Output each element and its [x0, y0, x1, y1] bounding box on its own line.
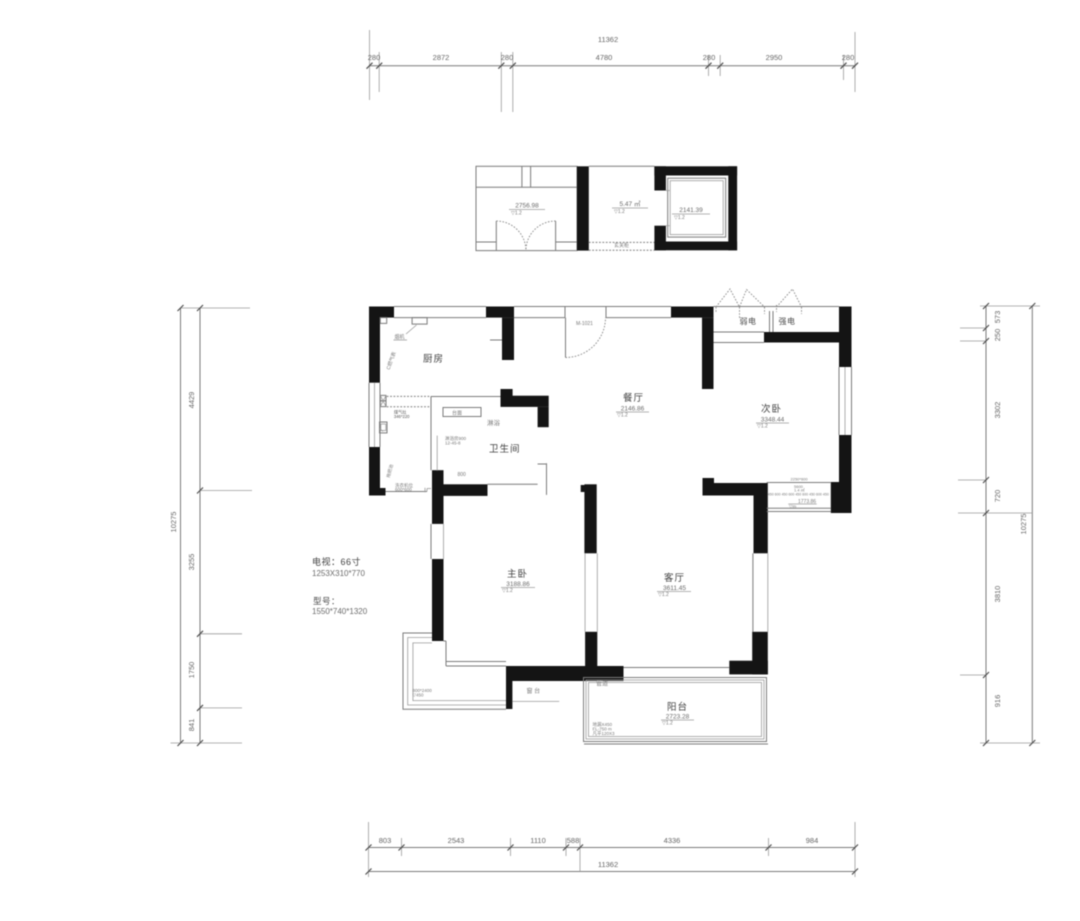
svg-text:4336: 4336: [664, 836, 681, 845]
svg-text:1750: 1750: [187, 662, 196, 679]
svg-text:3188.86: 3188.86: [506, 581, 530, 588]
svg-text:M-1021: M-1021: [576, 321, 593, 327]
svg-text:4780: 4780: [596, 53, 613, 62]
svg-text:1550*740*1320: 1550*740*1320: [312, 607, 368, 616]
svg-text:573: 573: [993, 311, 1002, 324]
svg-text:2723.28: 2723.28: [666, 714, 690, 721]
svg-text:280: 280: [703, 53, 716, 62]
svg-text:窗 台: 窗 台: [527, 687, 541, 695]
svg-text:3611.45: 3611.45: [663, 585, 686, 592]
svg-text:▽1.2: ▽1.2: [511, 211, 522, 217]
svg-text:台面: 台面: [452, 410, 462, 417]
svg-text:▽m: ▽m: [789, 504, 796, 509]
svg-text:800: 800: [458, 472, 467, 478]
svg-text:1110: 1110: [530, 836, 546, 845]
svg-text:10275: 10275: [1019, 514, 1028, 535]
svg-text:2146.86: 2146.86: [621, 406, 645, 413]
svg-text:3810: 3810: [993, 586, 1002, 603]
svg-text:280: 280: [368, 53, 381, 62]
svg-text:841: 841: [187, 719, 196, 732]
svg-text:5.47 ㎡: 5.47 ㎡: [620, 199, 641, 208]
svg-text:12-45-8: 12-45-8: [445, 441, 461, 446]
svg-text:4429: 4429: [187, 392, 196, 409]
svg-text:型号：: 型号：: [313, 596, 340, 606]
svg-text:卫生间: 卫生间: [489, 443, 521, 455]
svg-text:次卧: 次卧: [761, 403, 782, 415]
svg-text:电视：66寸: 电视：66寸: [312, 556, 361, 567]
svg-text:3348.44: 3348.44: [761, 417, 785, 424]
svg-text:450 600 450 600 450 600 450 60: 450 600 450 600 450 600 450 600 450: [768, 491, 830, 496]
svg-text:916: 916: [993, 695, 1002, 708]
svg-text:▽1.2: ▽1.2: [757, 424, 768, 430]
svg-text:厨房: 厨房: [423, 353, 444, 365]
svg-text:▽1.2: ▽1.2: [502, 588, 513, 594]
svg-text:280: 280: [842, 53, 855, 62]
svg-text:▽1.2: ▽1.2: [614, 209, 625, 215]
svg-text:▽450: ▽450: [413, 693, 424, 698]
svg-text:弱电: 弱电: [740, 316, 757, 326]
svg-text:10275: 10275: [169, 512, 178, 533]
svg-text:2872: 2872: [433, 53, 450, 62]
svg-text:玄关柜: 玄关柜: [614, 242, 629, 249]
svg-text:600*600: 600*600: [395, 487, 412, 492]
svg-text:2756.98: 2756.98: [515, 203, 539, 210]
svg-text:280: 280: [501, 53, 514, 62]
svg-text:346*220: 346*220: [394, 414, 410, 419]
svg-text:250: 250: [993, 329, 1002, 342]
svg-text:▽1.2: ▽1.2: [662, 721, 673, 727]
svg-text:3255: 3255: [187, 554, 196, 571]
svg-text:阳台: 阳台: [667, 701, 688, 713]
svg-text:11362: 11362: [598, 35, 618, 44]
svg-text:2141.39: 2141.39: [679, 207, 703, 214]
svg-text:▽1.2: ▽1.2: [658, 592, 669, 598]
svg-text:餐厅: 餐厅: [623, 392, 644, 404]
svg-text:主卧: 主卧: [507, 568, 528, 580]
svg-text:▽1.2: ▽1.2: [674, 215, 685, 221]
svg-text:烟机: 烟机: [395, 334, 405, 341]
svg-text:803: 803: [379, 836, 392, 845]
svg-text:3302: 3302: [993, 402, 1002, 419]
svg-text:淋浴: 淋浴: [487, 418, 501, 427]
svg-text:管道: 管道: [596, 680, 608, 688]
svg-text:11362: 11362: [598, 860, 618, 869]
svg-text:1253X310*770: 1253X310*770: [312, 569, 365, 578]
svg-text:强电: 强电: [779, 316, 796, 326]
svg-text:720: 720: [993, 490, 1002, 503]
svg-text:2250*600: 2250*600: [791, 477, 809, 482]
svg-text:2543: 2543: [448, 836, 465, 845]
svg-text:2950: 2950: [766, 53, 783, 62]
svg-text:588: 588: [567, 836, 580, 845]
svg-text:984: 984: [806, 836, 819, 845]
svg-text:▽1.2: ▽1.2: [617, 413, 628, 419]
svg-text:客厅: 客厅: [664, 572, 685, 584]
